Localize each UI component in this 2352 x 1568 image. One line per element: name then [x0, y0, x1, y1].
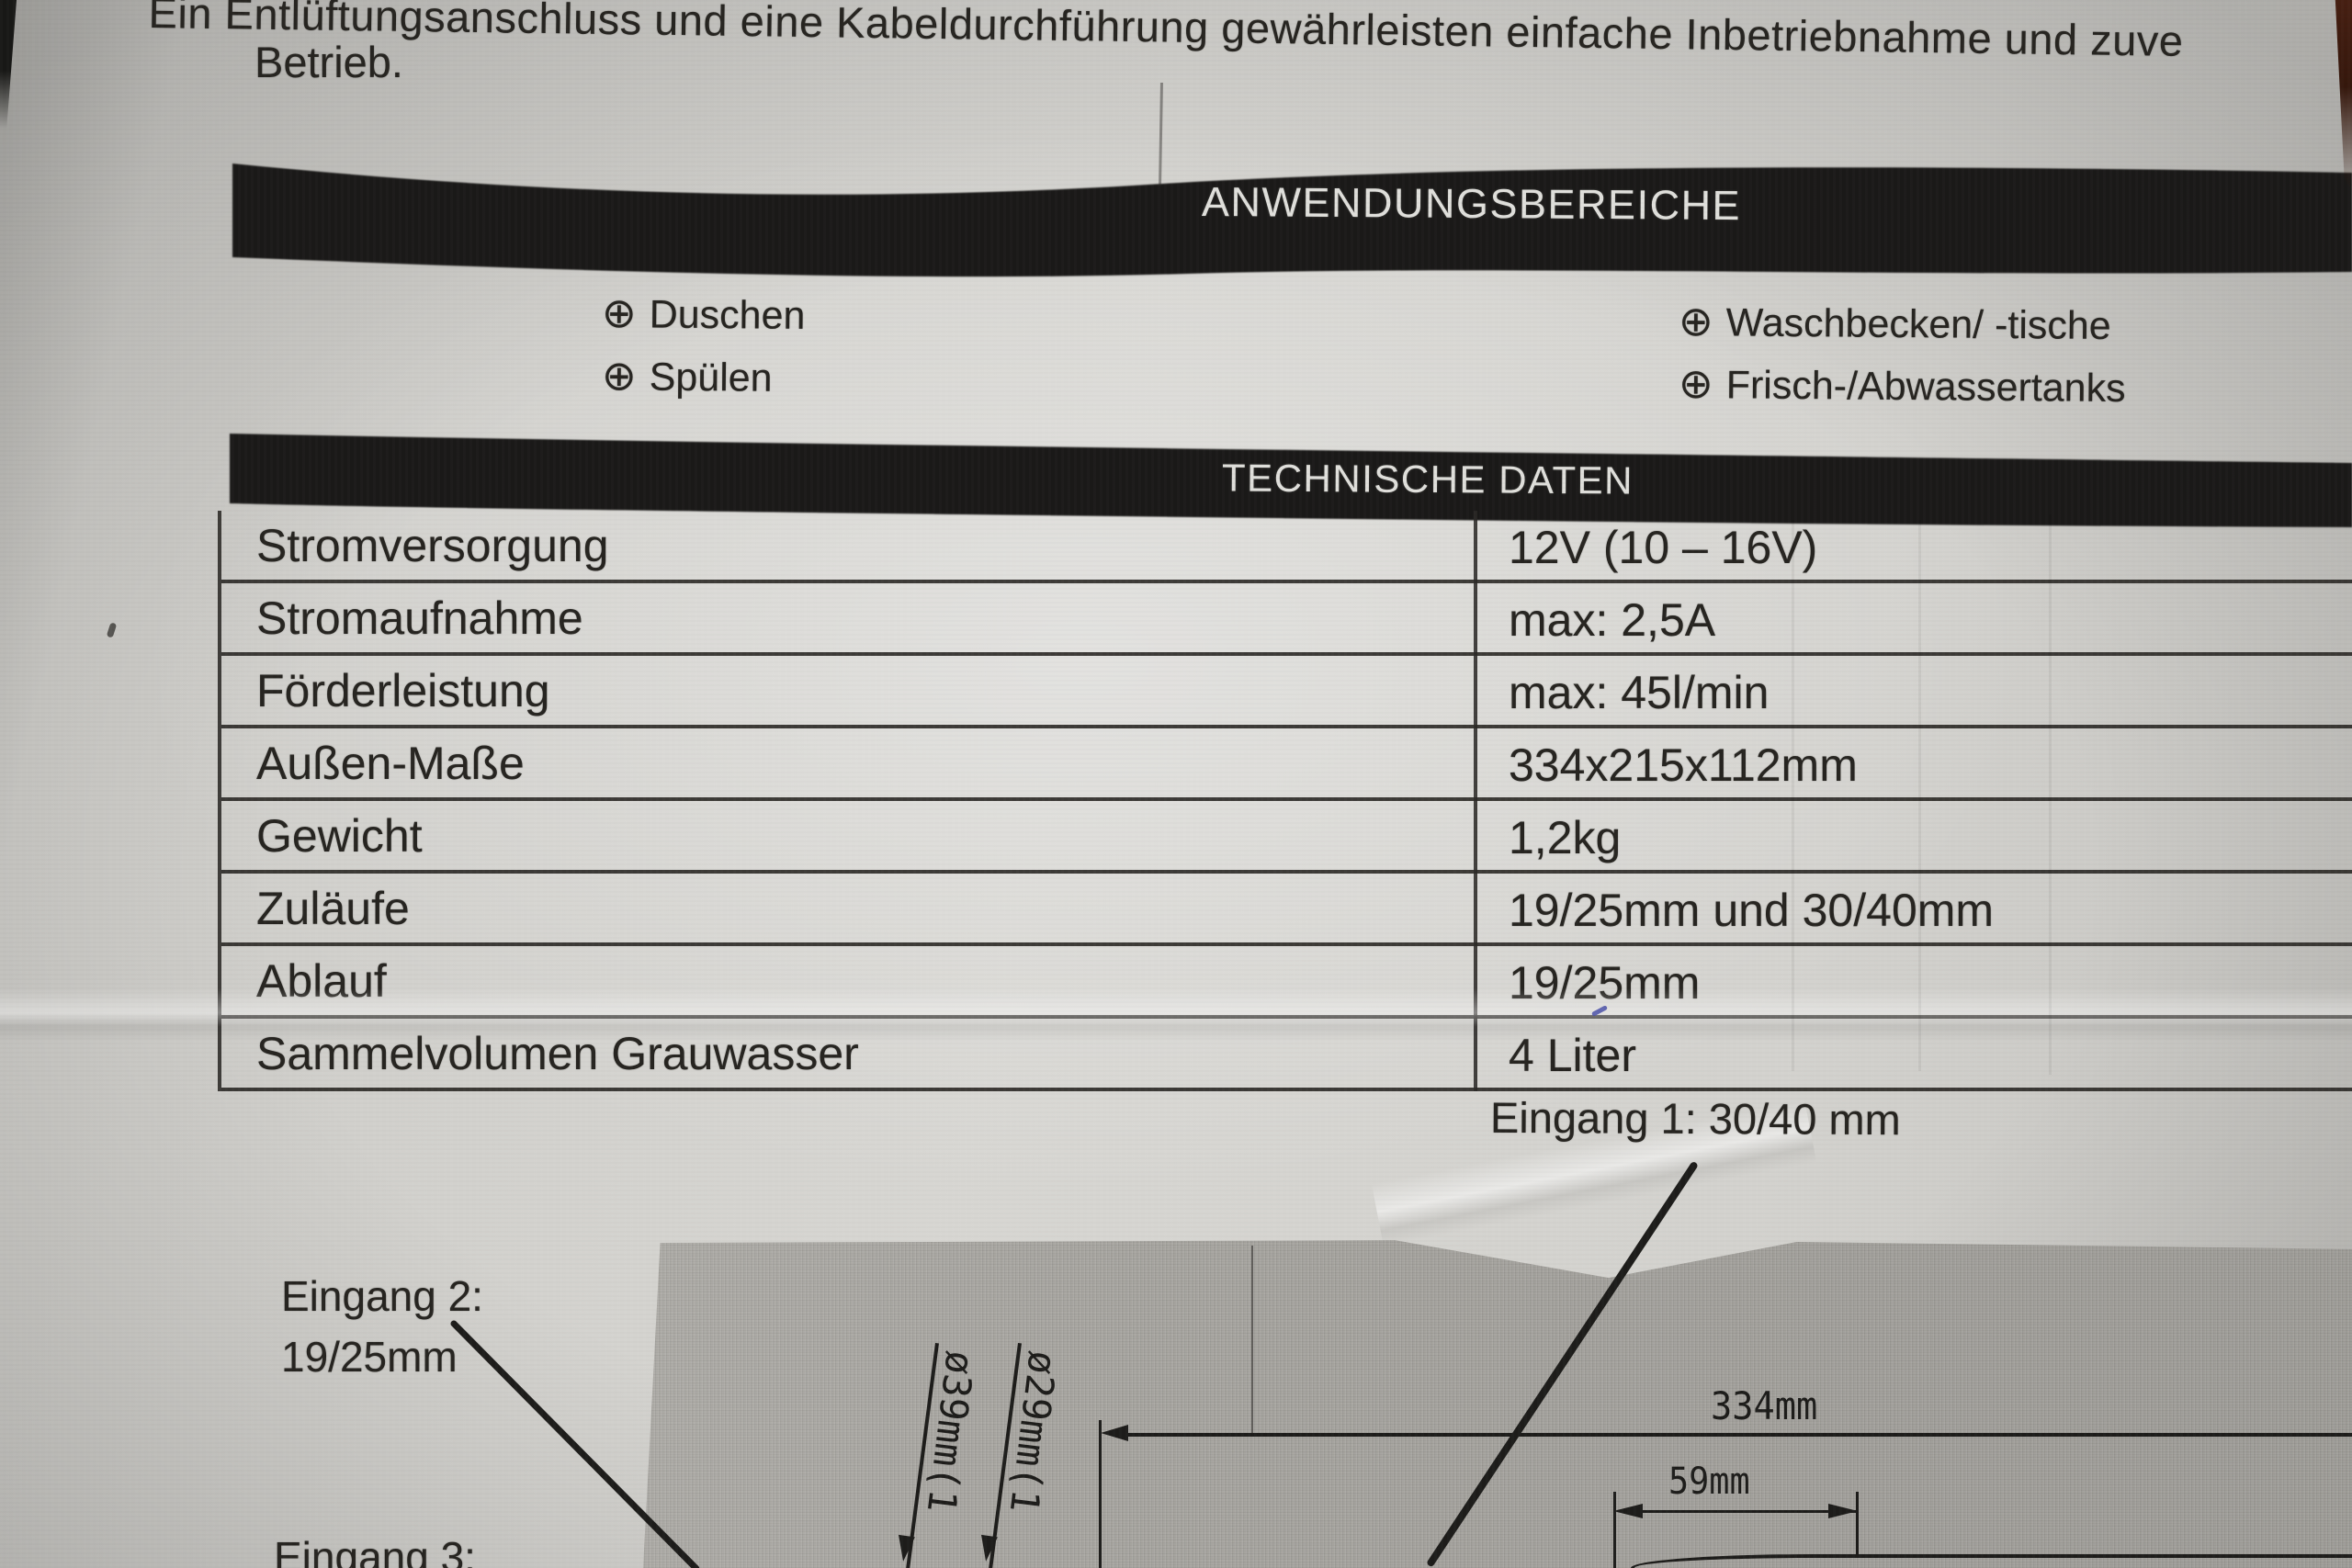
- table-row: Außen-Maße 334x215x112mm: [221, 728, 2352, 801]
- extension-line: [1251, 1246, 1253, 1435]
- spec-label: Förderleistung: [221, 656, 1474, 725]
- spec-label: Außen-Maße: [221, 728, 1474, 797]
- application-item-duschen: ⊕Duschen: [602, 288, 806, 339]
- technical-drawing-area: [643, 1238, 2352, 1568]
- circled-plus-icon: ⊕: [1679, 359, 1713, 408]
- dimension-59-label: 59mm: [1668, 1461, 1750, 1503]
- table-row: Zuläufe 19/25mm und 30/40mm: [221, 874, 2352, 946]
- table-row: Stromaufnahme max: 2,5A: [221, 583, 2352, 656]
- extension-line: [1856, 1492, 1859, 1558]
- arrow-down-icon: [978, 1535, 998, 1562]
- paper-crease: [0, 988, 2352, 1042]
- extension-line: [1099, 1420, 1102, 1568]
- application-item-label: Waschbecken/ -tische: [1726, 300, 2111, 348]
- dimension-line-334: [1125, 1433, 2352, 1437]
- circled-plus-icon: ⊕: [1679, 297, 1713, 345]
- applications-title: ANWENDUNGSBEREICHE: [1202, 178, 1741, 230]
- table-row: Förderleistung max: 45l/min: [221, 656, 2352, 728]
- spec-label: Zuläufe: [221, 874, 1474, 942]
- scan-streak: [1918, 520, 1921, 1071]
- technical-data-title: TECHNISCHE DATEN: [1222, 456, 1634, 502]
- pump-outline: [1631, 1554, 2352, 1568]
- dimension-line-59: [1628, 1510, 1856, 1513]
- intro-text-line2: Betrieb.: [254, 37, 403, 87]
- application-item-label: Duschen: [649, 292, 805, 337]
- application-item-label: Frisch-/Abwassertanks: [1726, 363, 2126, 411]
- photo-edge-dark: [0, 0, 17, 129]
- arrow-right-icon: [1828, 1504, 1858, 1518]
- application-item-spuelen: ⊕Spülen: [602, 351, 773, 401]
- circled-plus-icon: ⊕: [602, 351, 637, 400]
- circled-plus-icon: ⊕: [602, 288, 637, 337]
- spec-value: max: 45l/min: [1474, 656, 1769, 725]
- eingang1-label: Eingang 1: 30/40 mm: [1490, 1092, 1901, 1145]
- scan-streak: [1792, 520, 1794, 1071]
- extension-line: [1613, 1492, 1616, 1568]
- application-item-tanks: ⊕Frisch-/Abwassertanks: [1679, 359, 2126, 412]
- eingang2-line1: Eingang 2:: [281, 1266, 483, 1326]
- eingang2-line2: 19/25mm: [281, 1326, 483, 1387]
- spec-label: Stromaufnahme: [221, 583, 1474, 652]
- scan-streak: [2049, 514, 2052, 1075]
- table-row: Stromversorgung 12V (10 – 16V): [221, 511, 2352, 583]
- spec-value: 19/25mm und 30/40mm: [1474, 874, 1994, 942]
- eingang3-label: Eingang 3:: [274, 1532, 476, 1568]
- spec-label: Gewicht: [221, 801, 1474, 870]
- spec-value: 12V (10 – 16V): [1474, 511, 1817, 580]
- spec-value: max: 2,5A: [1474, 583, 1715, 652]
- application-item-waschbecken: ⊕Waschbecken/ -tische: [1679, 297, 2111, 349]
- arrow-left-icon: [1613, 1504, 1643, 1518]
- spec-value: 334x215x112mm: [1474, 728, 1858, 797]
- ink-speck: [107, 622, 118, 637]
- dimension-334-label: 334mm: [1711, 1383, 1817, 1428]
- intro-text-line1: Ein Entlüftungsanschluss und eine Kabeld…: [148, 0, 2184, 66]
- page-photo: Ein Entlüftungsanschluss und eine Kabeld…: [0, 0, 2352, 1568]
- spec-label: Stromversorgung: [221, 511, 1474, 580]
- table-row: Gewicht 1,2kg: [221, 801, 2352, 874]
- arrow-down-icon: [895, 1535, 915, 1562]
- spec-value: 1,2kg: [1474, 801, 1621, 870]
- application-item-label: Spülen: [649, 355, 772, 400]
